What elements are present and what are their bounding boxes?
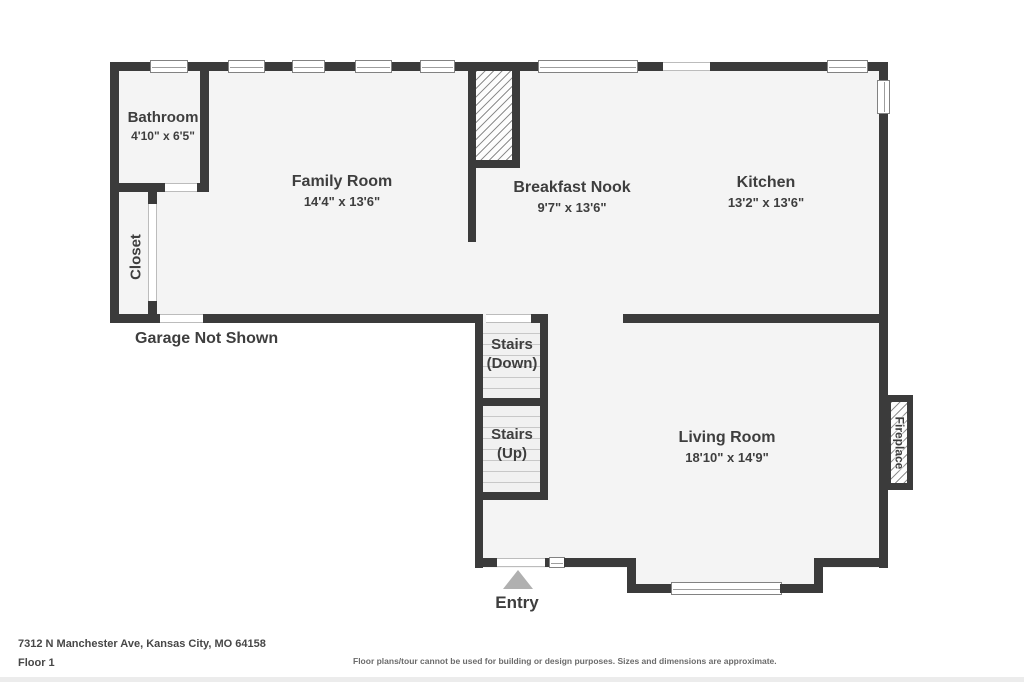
wall-stairs-bottom (483, 492, 548, 500)
window (877, 80, 890, 114)
room-name: Family Room (292, 173, 392, 191)
window (538, 60, 638, 73)
stairs-down-line2: (Down) (487, 355, 538, 374)
entry-sidelight-window (549, 557, 565, 568)
wall-bathroom-bottom-b (197, 183, 209, 192)
closet-door-opening (148, 204, 157, 301)
stairs-down-label: Stairs (Down) (487, 336, 538, 374)
footer-floor-label: Floor 1 (18, 657, 55, 669)
wall-bay-bottom-a (627, 584, 673, 593)
stairs-up-label: Stairs (Up) (491, 426, 533, 464)
footer-disclaimer: Floor plans/tour cannot be used for buil… (353, 656, 777, 666)
fireplace-label-text: Fireplace (892, 416, 906, 469)
wall-left-upper (110, 62, 119, 323)
room-dims: 14'4" x 13'6" (292, 194, 392, 210)
wall-upper-bottom-a (110, 314, 160, 323)
wall-stairs-left (475, 314, 483, 568)
wall-lower-bottom-a (475, 558, 497, 567)
entry-door-opening (497, 558, 545, 567)
stairs-down-line1: Stairs (487, 336, 538, 355)
wall-nook-divider (468, 168, 476, 242)
window (292, 60, 325, 73)
room-label-kitchen: Kitchen 13'2" x 13'6" (728, 174, 804, 211)
bottom-edge-bar (0, 677, 1024, 682)
room-dims: 13'2" x 13'6" (728, 195, 804, 211)
top-wall-opening (663, 62, 710, 71)
window (228, 60, 265, 73)
room-label-breakfast-nook: Breakfast Nook 9'7" x 13'6" (513, 179, 630, 216)
room-dims: 9'7" x 13'6" (513, 200, 630, 216)
room-label-living-room: Living Room 18'10" x 14'9" (679, 429, 776, 466)
bay-window (671, 582, 782, 595)
floor-plan-page: Fireplace Bathroom 4'10" x 6'5" Closet F… (0, 0, 1024, 682)
garage-note-label: Garage Not Shown (135, 330, 278, 348)
stairs-top-opening (486, 314, 531, 323)
room-name: Breakfast Nook (513, 179, 630, 197)
wall-kitchen-living-divider (623, 314, 888, 323)
room-label-bathroom: Bathroom 4'10" x 6'5" (128, 109, 199, 144)
window (150, 60, 188, 73)
wall-upper-bottom-b (203, 314, 475, 323)
room-dims: 18'10" x 14'9" (679, 450, 776, 466)
window (355, 60, 392, 73)
room-label-closet: Closet (128, 234, 145, 280)
stairs-up-line1: Stairs (491, 426, 533, 445)
wall-lower-bottom-c (814, 558, 888, 567)
room-name: Bathroom (128, 109, 199, 126)
wall-bathroom-right (200, 62, 209, 192)
wall-bathroom-bottom-a (110, 183, 165, 192)
wall-stairs-mid (483, 398, 548, 406)
entry-label: Entry (495, 593, 538, 613)
entry-arrow-icon (503, 570, 533, 589)
garage-door-opening (160, 314, 203, 323)
bathroom-door-opening (165, 183, 197, 192)
wall-lower-bottom-b (564, 558, 636, 567)
room-label-family-room: Family Room 14'4" x 13'6" (292, 173, 392, 210)
window (420, 60, 455, 73)
window (827, 60, 868, 73)
footer-address: 7312 N Manchester Ave, Kansas City, MO 6… (18, 638, 266, 650)
room-dims: 4'10" x 6'5" (128, 129, 199, 143)
room-name: Living Room (679, 429, 776, 447)
chimney-hatch (476, 71, 512, 160)
wall-closet-stub-bottom (148, 301, 157, 314)
fireplace-label: Fireplace (885, 395, 913, 490)
wall-closet-stub-top (148, 192, 157, 204)
room-name: Kitchen (728, 174, 804, 192)
wall-stairs-right (540, 314, 548, 500)
stairs-up-line2: (Up) (491, 445, 533, 464)
